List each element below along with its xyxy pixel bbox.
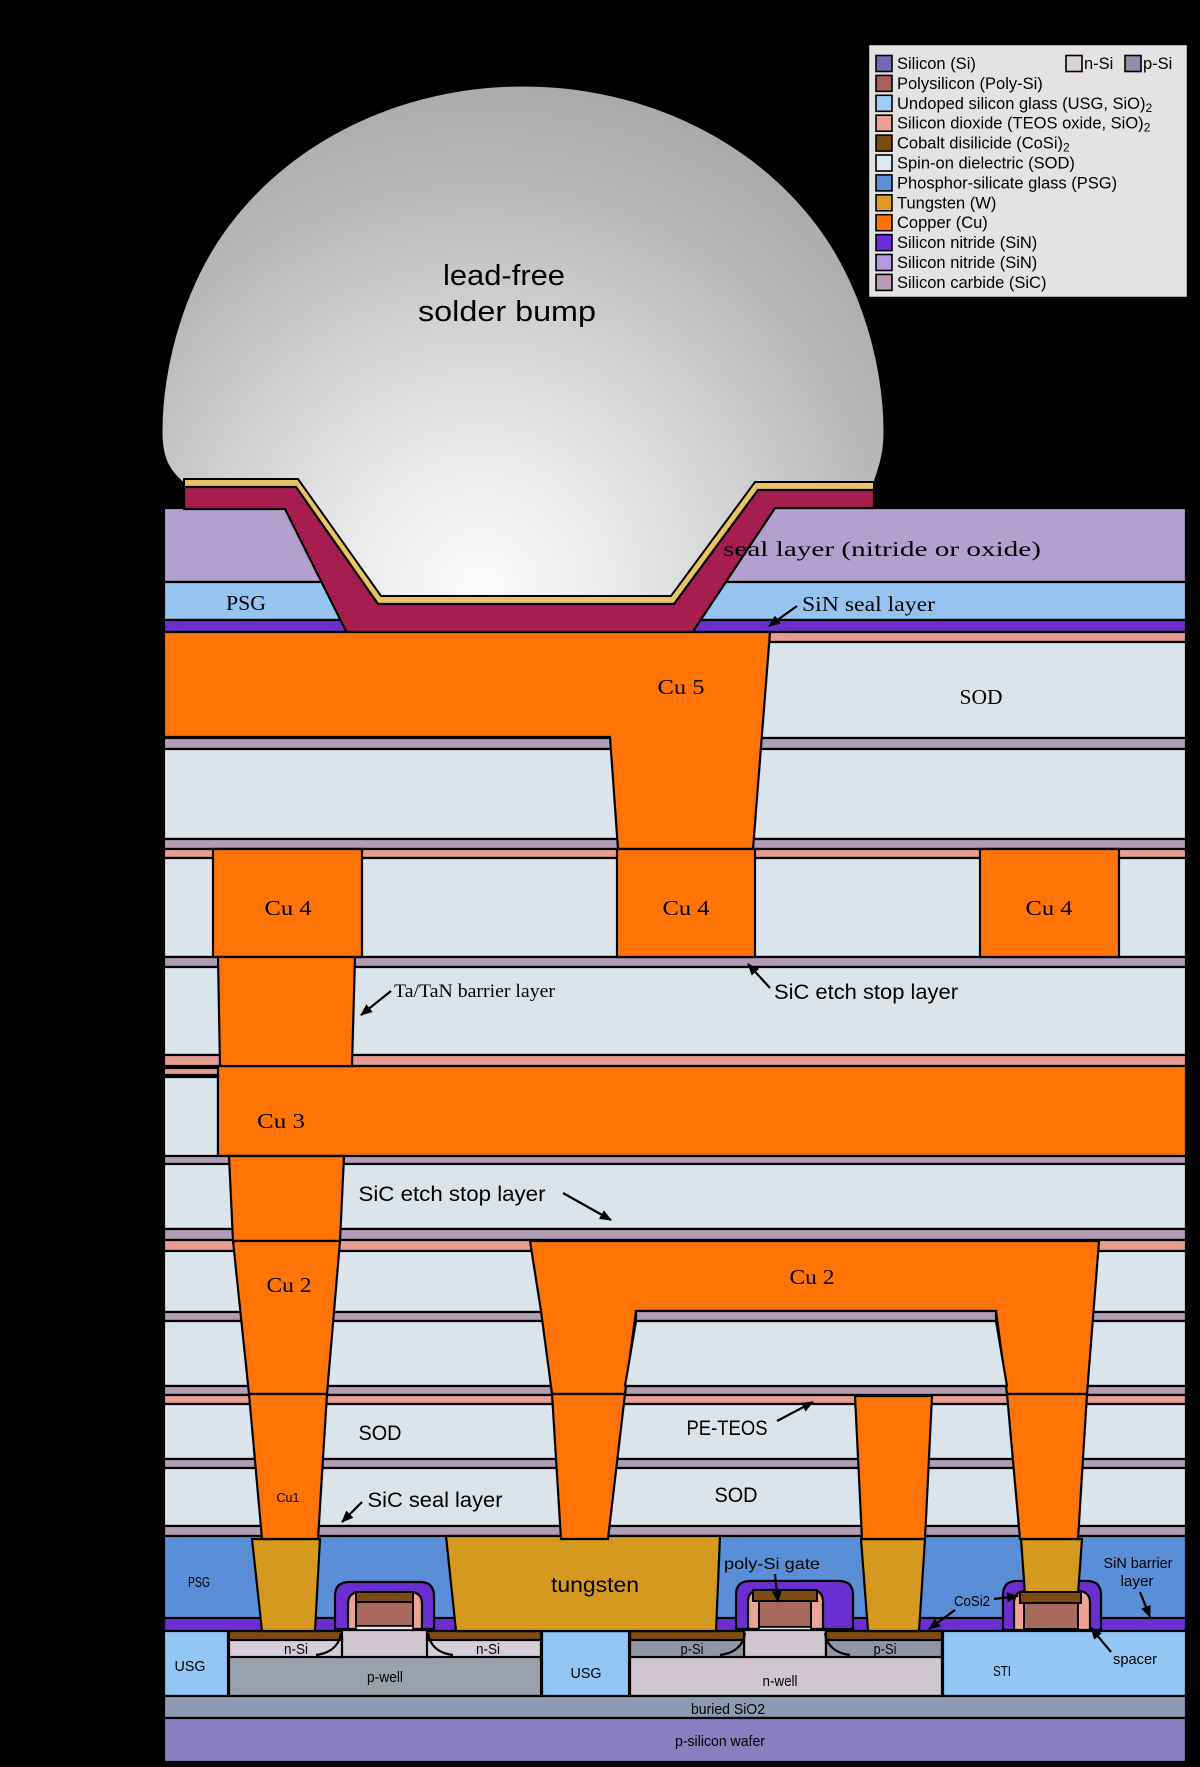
svg-text:p-Si: p-Si [874, 1641, 897, 1658]
svg-text:Cu 3: Cu 3 [257, 1109, 305, 1133]
svg-text:SOD: SOD [960, 685, 1003, 709]
svg-text:USG: USG [571, 1665, 602, 1682]
svg-text:poly-Si gate: poly-Si gate [724, 1556, 820, 1573]
svg-text:Cu 4: Cu 4 [265, 896, 313, 920]
svg-text:SOD: SOD [359, 1422, 402, 1445]
svg-text:SiC seal layer: SiC seal layer [368, 1489, 503, 1512]
svg-text:layer: layer [1121, 1573, 1154, 1590]
svg-text:solder bump: solder bump [418, 296, 596, 328]
svg-text:spacer: spacer [1113, 1651, 1157, 1668]
svg-text:Cu 2: Cu 2 [267, 1273, 312, 1297]
svg-text:SiC etch stop layer: SiC etch stop layer [774, 981, 958, 1004]
svg-text:Phosphor-silicate glass (PSG): Phosphor-silicate glass (PSG) [897, 174, 1117, 192]
svg-text:SiN seal layer: SiN seal layer [802, 592, 935, 616]
svg-text:SOD: SOD [715, 1484, 758, 1507]
svg-text:PSG: PSG [188, 1574, 210, 1591]
svg-text:p-silicon wafer: p-silicon wafer [675, 1733, 765, 1750]
svg-text:Silicon dioxide (TEOS oxide, S: Silicon dioxide (TEOS oxide, SiO)2 [897, 115, 1151, 135]
svg-text:Copper (Cu): Copper (Cu) [897, 214, 988, 232]
svg-text:Ta/TaN barrier layer: Ta/TaN barrier layer [394, 981, 556, 1002]
svg-text:n-Si: n-Si [476, 1641, 500, 1658]
svg-text:USG: USG [175, 1658, 206, 1675]
svg-text:lead-free: lead-free [443, 260, 565, 292]
svg-text:Silicon (Si): Silicon (Si) [897, 55, 976, 73]
svg-text:p-Si: p-Si [1143, 55, 1172, 73]
svg-text:Cu 4: Cu 4 [1026, 896, 1074, 920]
svg-text:Undoped silicon glass (USG, Si: Undoped silicon glass (USG, SiO)2 [897, 95, 1153, 115]
svg-text:p-Si: p-Si [681, 1641, 704, 1658]
svg-text:tungsten: tungsten [551, 1574, 639, 1597]
svg-text:Cobalt disilicide (CoSi)2: Cobalt disilicide (CoSi)2 [897, 135, 1070, 155]
svg-text:Cu1: Cu1 [277, 1490, 300, 1505]
svg-text:Silicon nitride (SiN): Silicon nitride (SiN) [897, 234, 1037, 252]
svg-text:Silicon nitride (SiN): Silicon nitride (SiN) [897, 254, 1037, 272]
svg-text:n-Si: n-Si [1084, 55, 1113, 73]
svg-text:n-well: n-well [763, 1673, 798, 1690]
svg-text:PE-TEOS: PE-TEOS [687, 1417, 768, 1440]
svg-text:Silicon carbide (SiC): Silicon carbide (SiC) [897, 274, 1046, 292]
svg-text:SiC etch stop layer: SiC etch stop layer [359, 1183, 546, 1206]
svg-text:Cu 5: Cu 5 [658, 675, 705, 699]
svg-text:buried SiO2: buried SiO2 [691, 1701, 765, 1718]
svg-text:Spin-on dielectric (SOD): Spin-on dielectric (SOD) [897, 155, 1075, 173]
svg-text:seal layer (nitride or oxide): seal layer (nitride or oxide) [723, 537, 1041, 561]
svg-text:Cu 4: Cu 4 [663, 896, 711, 920]
svg-text:p-well: p-well [367, 1669, 403, 1686]
svg-text:STI: STI [993, 1663, 1011, 1680]
svg-text:Tungsten (W): Tungsten (W) [897, 194, 996, 212]
svg-text:Cu 2: Cu 2 [790, 1265, 835, 1289]
svg-text:CoSi2: CoSi2 [954, 1593, 990, 1610]
svg-text:Polysilicon (Poly-Si): Polysilicon (Poly-Si) [897, 75, 1043, 93]
svg-text:SiN barrier: SiN barrier [1104, 1555, 1173, 1572]
svg-text:n-Si: n-Si [284, 1641, 308, 1658]
svg-text:PSG: PSG [226, 591, 266, 615]
